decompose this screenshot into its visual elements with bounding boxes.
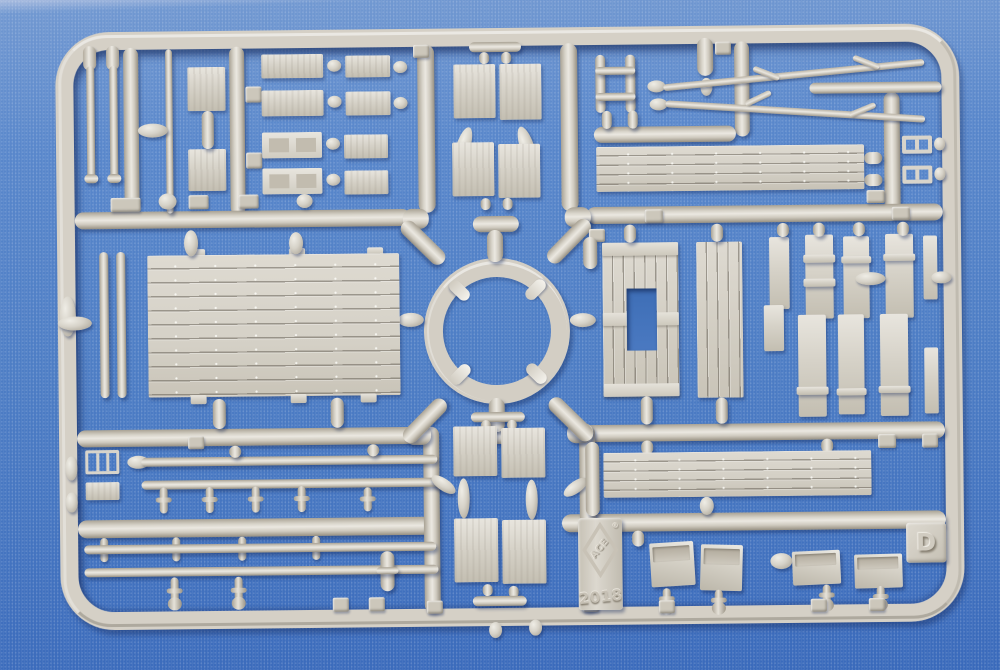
plank-wall — [696, 241, 744, 397]
rail-cleat — [803, 278, 835, 286]
peg — [624, 225, 636, 243]
slat-panel — [344, 170, 388, 194]
part-number-tag — [189, 195, 209, 209]
wall-rail — [604, 383, 680, 397]
lever-rod-foot — [107, 174, 121, 183]
hatch-panel — [502, 520, 547, 584]
slat-panel — [345, 91, 390, 115]
chassis-rail — [798, 315, 827, 417]
chassis-rail — [838, 314, 865, 414]
peg — [326, 174, 340, 186]
peg — [489, 622, 502, 638]
lever-rod — [109, 66, 118, 178]
peg — [394, 97, 408, 109]
peg — [501, 52, 511, 64]
runner-horizontal — [75, 209, 411, 230]
crate-part — [700, 544, 743, 591]
crate-part — [792, 550, 841, 586]
slat-panel — [344, 134, 388, 158]
peg — [897, 222, 909, 236]
part-number-tag — [413, 45, 429, 58]
hatch-panel — [498, 144, 541, 198]
recessed-panel — [262, 132, 322, 159]
planked-floor-panel — [147, 253, 400, 398]
part-number-tag — [811, 599, 827, 612]
planked-side-board — [603, 450, 871, 498]
hatch-panel — [453, 64, 496, 118]
sprue-letter: D — [916, 528, 936, 556]
sprue-assembly: ACE ® 2018 D — [0, 0, 1000, 670]
rail-cleat — [797, 387, 829, 395]
part-number-tag — [239, 195, 259, 209]
peg — [481, 198, 491, 210]
rail-cleat — [841, 256, 871, 263]
peg — [297, 194, 313, 208]
wall-rail — [602, 242, 678, 256]
pin-part — [206, 487, 214, 513]
part-number-tag — [867, 190, 885, 203]
part-number-tag — [715, 42, 731, 55]
peg — [864, 174, 882, 186]
part-number-tag — [245, 86, 261, 102]
part-number-tag — [111, 198, 141, 212]
peg — [65, 456, 77, 480]
plank-wall-with-window — [602, 242, 680, 397]
runner-branch — [594, 126, 736, 143]
hinge-tab — [361, 393, 377, 402]
peg — [864, 152, 882, 164]
slat-panel — [261, 90, 323, 117]
peg — [632, 531, 644, 547]
runner-vertical — [883, 92, 900, 214]
rail-cleat — [803, 254, 835, 262]
ring-top-stub — [487, 230, 503, 262]
peg — [716, 398, 728, 424]
runner-vertical — [229, 47, 246, 215]
t-connector — [473, 596, 527, 607]
runner-vertical — [560, 43, 579, 211]
t-connector — [471, 412, 525, 423]
peg — [813, 223, 825, 237]
runner-vertical — [734, 41, 750, 136]
peg — [628, 111, 638, 129]
hatch-panel — [501, 428, 546, 478]
chassis-rail — [880, 314, 909, 416]
window-frame-part — [85, 450, 119, 474]
h-frame-part — [595, 55, 606, 113]
peg — [711, 224, 723, 242]
part-number-tag — [369, 597, 385, 611]
peg — [184, 230, 198, 256]
pin-part — [160, 487, 168, 513]
chassis-rail — [885, 234, 914, 318]
runner-vertical — [585, 442, 600, 516]
peg — [479, 52, 489, 64]
peg — [853, 222, 865, 236]
peg — [583, 237, 597, 269]
recessed-panel — [262, 168, 322, 195]
peg — [202, 111, 214, 149]
peg — [367, 444, 379, 456]
h-frame-part — [595, 93, 635, 101]
pin-part — [252, 487, 260, 513]
part-number-tag — [645, 209, 663, 222]
peg — [289, 232, 303, 254]
lever-rod — [86, 66, 95, 178]
rail-cleat — [837, 388, 867, 395]
peg — [529, 620, 542, 636]
peg — [327, 60, 341, 72]
rail-cleat — [883, 254, 915, 261]
mold-year-marking: 2018 — [578, 586, 624, 608]
strip-part — [923, 235, 938, 299]
part-number-tag — [659, 600, 675, 613]
t-connector — [469, 42, 521, 53]
hatch-panel — [453, 426, 498, 476]
peg — [326, 138, 340, 150]
registered-trademark-mark: ® — [612, 522, 619, 530]
peg — [526, 480, 538, 520]
lever-rod-foot — [84, 174, 98, 183]
crate-part — [649, 541, 696, 588]
peg — [602, 111, 612, 129]
photo-model-kit-sprue: ACE ® 2018 D — [0, 0, 1000, 670]
peg — [66, 492, 78, 512]
part-number-tag — [188, 436, 204, 449]
peg — [503, 198, 513, 210]
hinge-tab — [291, 394, 307, 403]
brand-logo-tab: ACE ® 2018 — [578, 518, 623, 610]
hatch-panel — [454, 518, 499, 582]
peg — [327, 96, 341, 108]
runner-vertical — [417, 45, 436, 213]
sprue-letter-tab: D — [906, 522, 946, 562]
peg — [457, 478, 469, 518]
strip-part — [924, 347, 939, 413]
part-number-tag — [869, 598, 885, 611]
strip-part — [99, 252, 110, 398]
part-number-tag — [246, 152, 262, 168]
peg — [934, 167, 945, 180]
window-opening — [627, 288, 658, 350]
pin-part — [171, 577, 179, 605]
hinge-tab — [191, 395, 207, 404]
stub-part — [697, 38, 713, 76]
peg — [700, 497, 714, 515]
pin-part — [235, 577, 243, 605]
window-frame-part — [902, 135, 932, 153]
chassis-rail — [764, 305, 784, 351]
crate-part — [854, 553, 903, 588]
square-plate — [188, 149, 226, 191]
peg — [159, 193, 177, 209]
part-number-tag — [892, 207, 910, 220]
strip-part — [116, 252, 127, 398]
bar-part — [809, 81, 941, 93]
peg — [229, 446, 241, 458]
slat-panel — [261, 54, 323, 79]
small-plate — [86, 482, 120, 500]
peg — [331, 398, 344, 428]
part-number-tag — [922, 433, 938, 447]
pin-part — [364, 487, 372, 511]
center-ring-runner — [423, 257, 571, 405]
part-number-tag — [333, 598, 349, 612]
hatch-panel — [452, 142, 495, 196]
slat-panel — [345, 55, 390, 77]
hatch-panel — [499, 64, 542, 120]
peg — [934, 137, 945, 150]
runner-horizontal — [78, 517, 436, 539]
chassis-rail — [805, 235, 834, 319]
pin-part — [298, 486, 306, 512]
peg — [641, 396, 653, 424]
peg — [483, 584, 493, 596]
part-number-tag — [427, 601, 443, 614]
peg — [393, 61, 407, 73]
h-frame-part — [595, 67, 635, 75]
rail-cleat — [879, 386, 911, 393]
square-plate — [187, 67, 225, 111]
runner-vertical — [123, 48, 140, 208]
part-number-tag — [878, 434, 896, 448]
window-frame-part — [902, 165, 932, 183]
planked-side-board — [596, 144, 864, 192]
peg — [777, 223, 789, 237]
chassis-rail — [769, 237, 790, 309]
bracket-part — [376, 567, 398, 574]
h-frame-part — [625, 55, 636, 113]
pin-part — [715, 590, 723, 610]
peg — [213, 399, 226, 429]
